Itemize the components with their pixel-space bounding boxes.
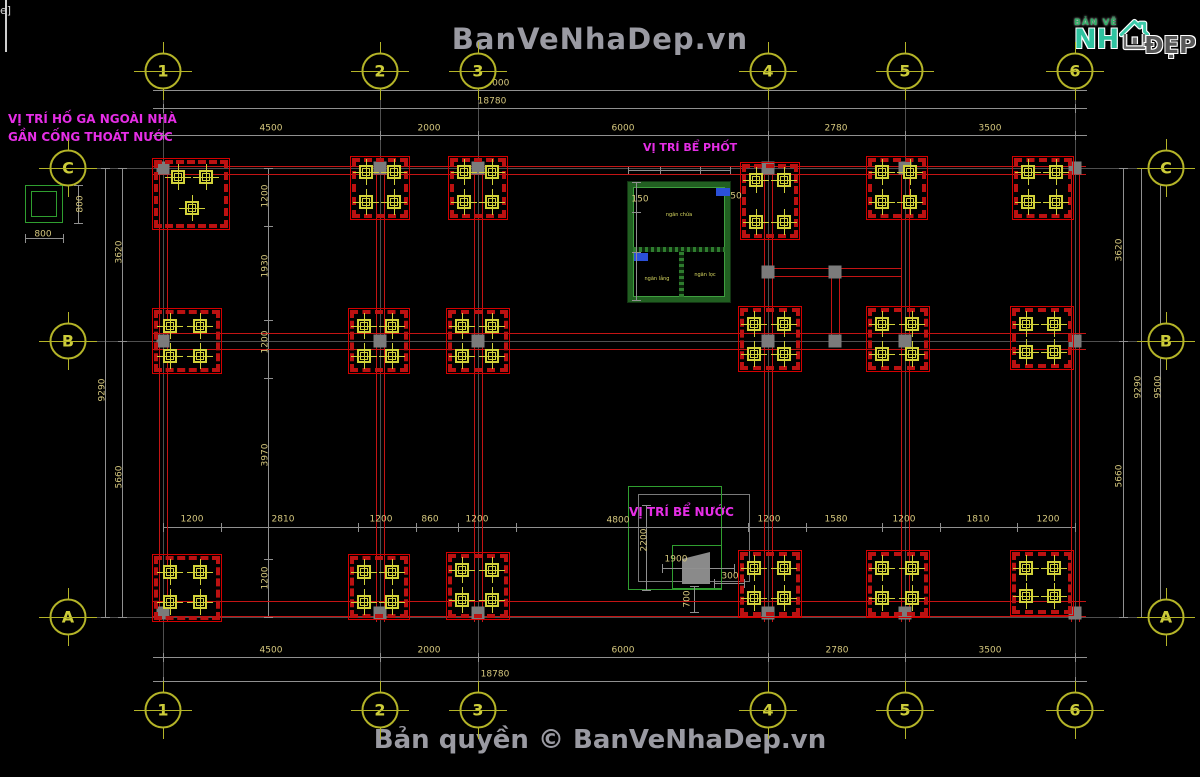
column-symbol (357, 595, 371, 609)
dim-line (153, 681, 1087, 682)
dim-label: 300 (721, 573, 738, 582)
grid-bubble: 4 (739, 42, 797, 100)
dim-tick (768, 131, 769, 140)
dim-label: 6000 (612, 125, 635, 134)
column-symbol (1049, 195, 1063, 209)
dim-label: 800 (77, 195, 86, 212)
dim-tick (632, 212, 641, 213)
bubble-label: C (50, 150, 87, 187)
dim-label: 3970 (262, 444, 271, 467)
column-symbol (749, 173, 763, 187)
footing (1010, 306, 1074, 370)
column-symbol (1047, 589, 1061, 603)
column-symbol (385, 319, 399, 333)
toolbar-artifact-glyph: e] (0, 4, 11, 17)
dim-tick (101, 617, 110, 618)
dim-label: 18780 (481, 671, 510, 680)
dim-tick (1075, 131, 1076, 140)
column-symbol (193, 565, 207, 579)
dim-label: 1930 (262, 255, 271, 278)
dim-tick (264, 559, 273, 560)
dim-label: 2200 (641, 529, 650, 552)
column-symbol (485, 349, 499, 363)
column-symbol (1019, 345, 1033, 359)
column-symbol (163, 595, 177, 609)
dim-label: 2810 (272, 516, 295, 525)
dim-tick (632, 182, 641, 183)
dim-tick (118, 168, 127, 169)
bubble-label: 2 (362, 53, 399, 90)
dim-label: 700 (684, 590, 693, 607)
column-symbol (903, 195, 917, 209)
column-symbol (1019, 589, 1033, 603)
column-symbol (193, 319, 207, 333)
column-symbol (1019, 317, 1033, 331)
dim-tick (1075, 523, 1076, 532)
grid-bubble: 2 (351, 681, 409, 739)
pipe-mark (716, 188, 730, 196)
grid-line (88, 168, 1146, 169)
grid-line (88, 341, 1146, 342)
column-symbol (747, 347, 761, 361)
grid-node (829, 335, 842, 348)
column-symbol (905, 347, 919, 361)
column-symbol (387, 195, 401, 209)
grid-node (829, 266, 842, 279)
bubble-label: B (1148, 323, 1185, 360)
dim-label: 2000 (418, 125, 441, 134)
dim-label: 1200 (893, 516, 916, 525)
footing (738, 306, 802, 372)
dim-label: 800 (34, 231, 51, 240)
dim-label: 3500 (979, 647, 1002, 656)
dim-tick (748, 523, 749, 532)
column-symbol (357, 319, 371, 333)
dim-line (662, 568, 734, 569)
dim-tick (74, 223, 83, 224)
bubble-label: 5 (887, 692, 924, 729)
bubble-label: B (50, 323, 87, 360)
dim-tick (163, 523, 164, 532)
dim-line (153, 108, 1087, 109)
column-symbol (1047, 561, 1061, 575)
beam-line (376, 162, 377, 622)
bubble-label: 3 (460, 53, 497, 90)
column-symbol (185, 201, 199, 215)
dim-label: 1200 (181, 516, 204, 525)
beam-line (831, 268, 832, 345)
dim-line (694, 586, 695, 612)
column-symbol (485, 563, 499, 577)
bubble-label: 4 (750, 53, 787, 90)
beam-line (167, 162, 168, 622)
dim-label: 6000 (612, 647, 635, 656)
dim-label: 3620 (1116, 239, 1125, 262)
column-symbol (455, 319, 469, 333)
dim-tick (478, 653, 479, 662)
dim-tick (662, 564, 663, 573)
column-symbol (749, 215, 763, 229)
grid-bubble: A (39, 588, 97, 646)
dim-tick (380, 131, 381, 140)
footing (348, 554, 410, 620)
column-symbol (903, 165, 917, 179)
beam-line (152, 166, 1086, 167)
column-symbol (1047, 317, 1061, 331)
dim-tick (163, 131, 164, 140)
logo-suffix-text: ĐẸP (1144, 33, 1196, 59)
dim-tick (221, 523, 222, 532)
dim-tick (264, 378, 273, 379)
grid-line (88, 617, 1146, 618)
beam-line (152, 601, 1086, 602)
grid-bubble: 1 (134, 681, 192, 739)
column-symbol (387, 165, 401, 179)
column-symbol (747, 591, 761, 605)
bubble-label: A (50, 599, 87, 636)
dim-label: 3500 (979, 125, 1002, 134)
dim-line (628, 170, 730, 171)
dim-tick (25, 234, 26, 243)
grid-bubble: 5 (876, 681, 934, 739)
column-symbol (777, 173, 791, 187)
dim-tick (768, 653, 769, 662)
grid-bubble: 6 (1046, 42, 1104, 100)
footing (348, 308, 410, 374)
column-symbol (777, 317, 791, 331)
dim-line (163, 527, 1075, 528)
dim-tick (632, 252, 641, 253)
column-symbol (199, 170, 213, 184)
dim-label: 1580 (825, 516, 848, 525)
column-symbol (1049, 165, 1063, 179)
column-symbol (747, 561, 761, 575)
dim-tick (1075, 104, 1076, 113)
dim-line (1123, 168, 1124, 617)
footing (866, 306, 930, 372)
grid-node (762, 266, 775, 279)
column-symbol (385, 565, 399, 579)
beam-line (152, 616, 1086, 617)
dim-tick (905, 131, 906, 140)
column-symbol (777, 347, 791, 361)
bubble-label: 1 (145, 692, 182, 729)
dim-label: 860 (421, 516, 438, 525)
grid-bubble: C (39, 139, 97, 197)
dim-line (122, 168, 123, 617)
dim-label: 2780 (826, 647, 849, 656)
column-symbol (193, 349, 207, 363)
dim-label: 4500 (260, 125, 283, 134)
dim-tick (264, 320, 273, 321)
dim-label: 2000 (418, 647, 441, 656)
bubble-label: 3 (460, 692, 497, 729)
grid-bubble: B (39, 312, 97, 370)
column-symbol (455, 349, 469, 363)
grid-bubble: A (1137, 588, 1195, 646)
column-symbol (385, 595, 399, 609)
column-symbol (359, 165, 373, 179)
bubble-label: A (1148, 599, 1185, 636)
dim-tick (516, 523, 517, 532)
beam-line (1079, 162, 1080, 622)
dim-label: 9290 (99, 379, 108, 402)
grid-bubble: 5 (876, 42, 934, 100)
column-symbol (875, 195, 889, 209)
bubble-label: 4 (750, 692, 787, 729)
grid-bubble: 1 (134, 42, 192, 100)
column-symbol (485, 165, 499, 179)
dim-label: 150 (631, 196, 648, 205)
dim-label: 1200 (262, 567, 271, 590)
column-symbol (747, 317, 761, 331)
column-symbol (905, 561, 919, 575)
bephot-label: VỊ TRÍ BỂ PHỐT (643, 141, 737, 154)
column-symbol (875, 317, 889, 331)
column-symbol (1021, 195, 1035, 209)
dim-tick (940, 523, 941, 532)
column-symbol (163, 565, 177, 579)
dim-tick (478, 131, 479, 140)
column-symbol (485, 195, 499, 209)
dim-label: 1200 (466, 516, 489, 525)
footing (1010, 550, 1074, 616)
column-symbol (1021, 165, 1035, 179)
dim-tick (264, 168, 273, 169)
column-symbol (171, 170, 185, 184)
column-symbol (1019, 561, 1033, 575)
column-symbol (875, 561, 889, 575)
dim-label: 4500 (260, 647, 283, 656)
beam-line (152, 174, 1086, 175)
column-symbol (385, 349, 399, 363)
septic-chamber-label: ngăn lắng (645, 276, 670, 282)
dim-label: 4800 (607, 517, 630, 526)
dim-line (153, 135, 1087, 136)
dim-tick (690, 586, 699, 587)
dim-line (153, 657, 1087, 658)
dim-tick (1119, 617, 1128, 618)
dim-tick (163, 653, 164, 662)
column-symbol (163, 349, 177, 363)
column-symbol (905, 317, 919, 331)
column-symbol (1047, 345, 1061, 359)
dim-tick (358, 523, 359, 532)
dim-label: 1200 (262, 331, 271, 354)
grid-bubble: 4 (739, 681, 797, 739)
dim-tick (264, 617, 273, 618)
dim-tick (458, 523, 459, 532)
beam-line (152, 349, 1086, 350)
dim-tick (63, 234, 64, 243)
dim-tick (1075, 653, 1076, 662)
dim-label: 1900 (665, 556, 688, 565)
beam-line (159, 162, 160, 622)
footing (152, 158, 230, 230)
dim-tick (806, 523, 807, 532)
hoga-note-line1: VỊ TRÍ HỐ GA NGOÀI NHÀ (8, 112, 177, 126)
column-symbol (905, 591, 919, 605)
dim-tick (1119, 341, 1128, 342)
dim-tick (690, 612, 699, 613)
dim-tick (101, 168, 110, 169)
dim-tick (1017, 523, 1018, 532)
dim-tick (642, 505, 651, 506)
bubble-label: C (1148, 150, 1185, 187)
bubble-label: 6 (1057, 53, 1094, 90)
column-symbol (457, 195, 471, 209)
dim-tick (905, 653, 906, 662)
column-symbol (359, 195, 373, 209)
footing (446, 308, 510, 374)
dim-tick (1119, 168, 1128, 169)
bubble-label: 1 (145, 53, 182, 90)
column-symbol (777, 215, 791, 229)
dim-label: 1200 (758, 516, 781, 525)
dim-tick (416, 523, 417, 532)
column-symbol (455, 563, 469, 577)
dim-tick (163, 104, 164, 113)
dim-label: 50 (730, 193, 741, 202)
dim-label: 9500 (1155, 376, 1164, 399)
grid-bubble: 2 (351, 42, 409, 100)
dim-label: 5660 (116, 466, 125, 489)
grid-bubble: 3 (449, 681, 507, 739)
grid-bubble: B (1137, 312, 1195, 370)
column-symbol (357, 565, 371, 579)
septic-chamber-label: ngăn chứa (666, 212, 692, 218)
grid-bubble: 6 (1046, 681, 1104, 739)
dim-label: 1810 (967, 516, 990, 525)
column-symbol (457, 165, 471, 179)
dim-label: 1200 (1037, 516, 1060, 525)
dim-label: 5660 (1116, 465, 1125, 488)
dim-tick (118, 341, 127, 342)
dim-label: 2780 (825, 125, 848, 134)
dim-label: 9290 (1135, 376, 1144, 399)
dim-tick (632, 300, 641, 301)
column-symbol (485, 319, 499, 333)
beam-line (384, 162, 385, 622)
grid-bubble: 3 (449, 42, 507, 100)
column-symbol (777, 591, 791, 605)
column-symbol (777, 561, 791, 575)
dim-tick (118, 617, 127, 618)
bubble-label: 2 (362, 692, 399, 729)
septic-wall (679, 251, 684, 297)
column-symbol (455, 593, 469, 607)
column-symbol (485, 593, 499, 607)
beam-line (152, 333, 1086, 334)
dim-line (268, 168, 269, 617)
column-symbol (357, 349, 371, 363)
footing (152, 308, 222, 374)
dim-tick (642, 590, 651, 591)
dim-line (153, 90, 1087, 91)
septic-chamber-label: ngăn lọc (694, 272, 715, 278)
column-symbol (875, 591, 889, 605)
dim-tick (714, 579, 715, 588)
column-symbol (875, 165, 889, 179)
dim-label: 3620 (116, 241, 125, 264)
dim-tick (882, 523, 883, 532)
bubble-label: 5 (887, 53, 924, 90)
beam-line (839, 268, 840, 345)
grid-bubble: C (1137, 139, 1195, 197)
bubble-label: 6 (1057, 692, 1094, 729)
dim-label: 1200 (262, 185, 271, 208)
dim-tick (264, 226, 273, 227)
column-symbol (875, 347, 889, 361)
column-symbol (193, 595, 207, 609)
column-symbol (163, 319, 177, 333)
dim-tick (380, 653, 381, 662)
drawing-canvas: e] BanVeNhaDep.vn BẢN VẼ NH ĐẸP VỊ TRÍ H… (0, 0, 1200, 777)
dim-label: 1200 (370, 516, 393, 525)
